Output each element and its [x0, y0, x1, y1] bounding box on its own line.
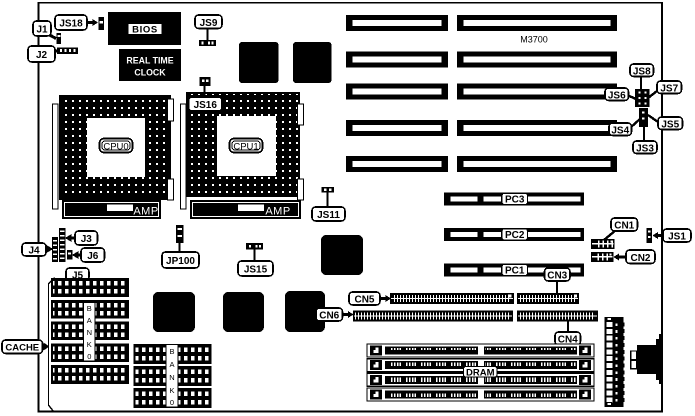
svg-text:JS7: JS7 [660, 83, 678, 94]
svg-text:PC1: PC1 [505, 266, 525, 277]
svg-text:DRAM: DRAM [466, 367, 495, 378]
svg-text:A: A [169, 360, 174, 369]
svg-text:JS15: JS15 [244, 265, 268, 276]
svg-text:M3700: M3700 [520, 35, 548, 45]
svg-text:CN2: CN2 [630, 253, 650, 264]
svg-text:JS5: JS5 [661, 119, 679, 130]
svg-text:K: K [169, 386, 174, 395]
svg-text:JS18: JS18 [59, 19, 83, 30]
svg-text:J6: J6 [87, 251, 99, 262]
svg-text:N: N [87, 328, 92, 337]
svg-text:0: 0 [170, 398, 174, 407]
svg-text:AMP: AMP [265, 206, 290, 218]
svg-text:PC2: PC2 [505, 230, 525, 241]
svg-text:CN5: CN5 [354, 295, 374, 306]
svg-text:JS8: JS8 [633, 66, 651, 77]
svg-text:JS11: JS11 [317, 210, 340, 221]
svg-text:J2: J2 [36, 50, 48, 61]
svg-text:CPU1: CPU1 [233, 142, 258, 153]
svg-text:N: N [169, 373, 174, 382]
svg-text:J4: J4 [28, 246, 40, 257]
svg-text:J3: J3 [81, 234, 93, 245]
svg-text:A: A [87, 316, 92, 325]
svg-text:CACHE: CACHE [5, 343, 39, 354]
svg-text:JS4: JS4 [611, 125, 629, 136]
svg-text:JS6: JS6 [608, 90, 626, 101]
svg-text:CLOCK: CLOCK [134, 68, 166, 78]
svg-text:0: 0 [87, 352, 91, 361]
svg-text:AMP: AMP [133, 206, 158, 218]
svg-text:K: K [87, 340, 92, 349]
svg-text:PC3: PC3 [505, 195, 525, 206]
svg-text:BIOS: BIOS [132, 25, 158, 36]
svg-text:JS3: JS3 [636, 143, 654, 154]
svg-text:B: B [87, 304, 92, 313]
svg-text:JS1: JS1 [668, 232, 686, 243]
svg-text:JS9: JS9 [200, 18, 218, 29]
svg-text:REAL TIME: REAL TIME [126, 56, 173, 66]
svg-text:CPU0: CPU0 [103, 142, 128, 153]
svg-text:CN6: CN6 [319, 311, 339, 322]
svg-text:JS16: JS16 [194, 100, 218, 111]
svg-text:J1: J1 [36, 25, 48, 36]
svg-text:JP100: JP100 [166, 256, 195, 267]
svg-text:CN1: CN1 [614, 221, 634, 232]
svg-text:CN3: CN3 [547, 271, 567, 282]
svg-text:B: B [169, 347, 174, 356]
